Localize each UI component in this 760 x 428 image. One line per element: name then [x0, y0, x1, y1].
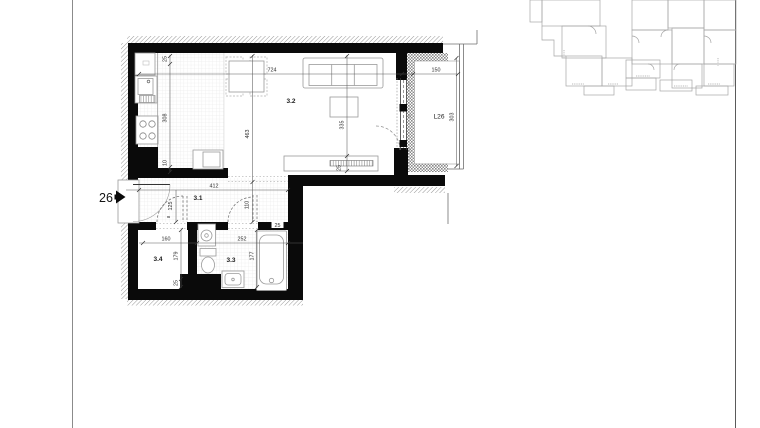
room-label-living: 3.2	[286, 98, 295, 105]
window-mark: 90	[408, 148, 412, 152]
room-label-bathroom: 3.3	[226, 257, 235, 264]
balcony	[407, 30, 477, 224]
dim-kitchen-run: 308	[163, 114, 169, 123]
dim-wardrobe-width: 160	[162, 237, 171, 243]
dim-balcony-width: 150	[432, 68, 441, 74]
balcony-window	[400, 78, 408, 150]
coffee-table	[330, 97, 358, 117]
dim-bath-wall: 25	[275, 223, 281, 229]
key-plan	[530, 0, 736, 95]
dim-wardrobe-bottom: 25	[174, 280, 180, 286]
dim-living-height: 463	[245, 130, 251, 139]
dining-table	[229, 61, 264, 92]
dim-hall-height: 125	[168, 202, 174, 211]
living-furniture	[284, 58, 383, 171]
dim-wardrobe-height: 179	[174, 252, 180, 261]
dim-hall-door-height: 110	[245, 201, 251, 210]
apartment-plan: 724 150 25 308 10 463 335 25 412 125 8 1…	[99, 30, 477, 306]
room-label-hall: 3.1	[193, 195, 202, 202]
dim-hall-width: 412	[210, 184, 219, 190]
balcony-floor	[415, 61, 460, 164]
dining-set	[226, 57, 267, 96]
dim-living-width: 724	[268, 68, 277, 74]
dim-balcony-depth: 303	[450, 113, 456, 122]
balcony-door-swing	[376, 126, 400, 150]
floor-plan-drawing: 724 150 25 308 10 463 335 25 412 125 8 1…	[0, 0, 760, 428]
dim-kitchen-top: 25	[163, 56, 169, 62]
stove	[136, 116, 158, 144]
key-plan-micro-text	[564, 50, 720, 86]
dim-bath-width: 252	[238, 237, 247, 243]
floor-plan-page: 724 150 25 308 10 463 335 25 412 125 8 1…	[0, 0, 760, 428]
balcony-label: L26	[433, 114, 444, 121]
dim-kitchen-bottom: 10	[163, 160, 169, 166]
window-mark: 58	[408, 114, 412, 118]
dim-bench-depth: 25	[337, 165, 343, 171]
dim-living-height-right: 335	[340, 121, 346, 130]
window-mark: 90	[408, 82, 412, 86]
room-label-wardrobe: 3.4	[153, 256, 162, 263]
balcony-railing	[443, 30, 477, 224]
dim-bath-height: 177	[250, 252, 256, 261]
apartment-number: 26	[99, 191, 113, 205]
toilet	[200, 249, 216, 257]
